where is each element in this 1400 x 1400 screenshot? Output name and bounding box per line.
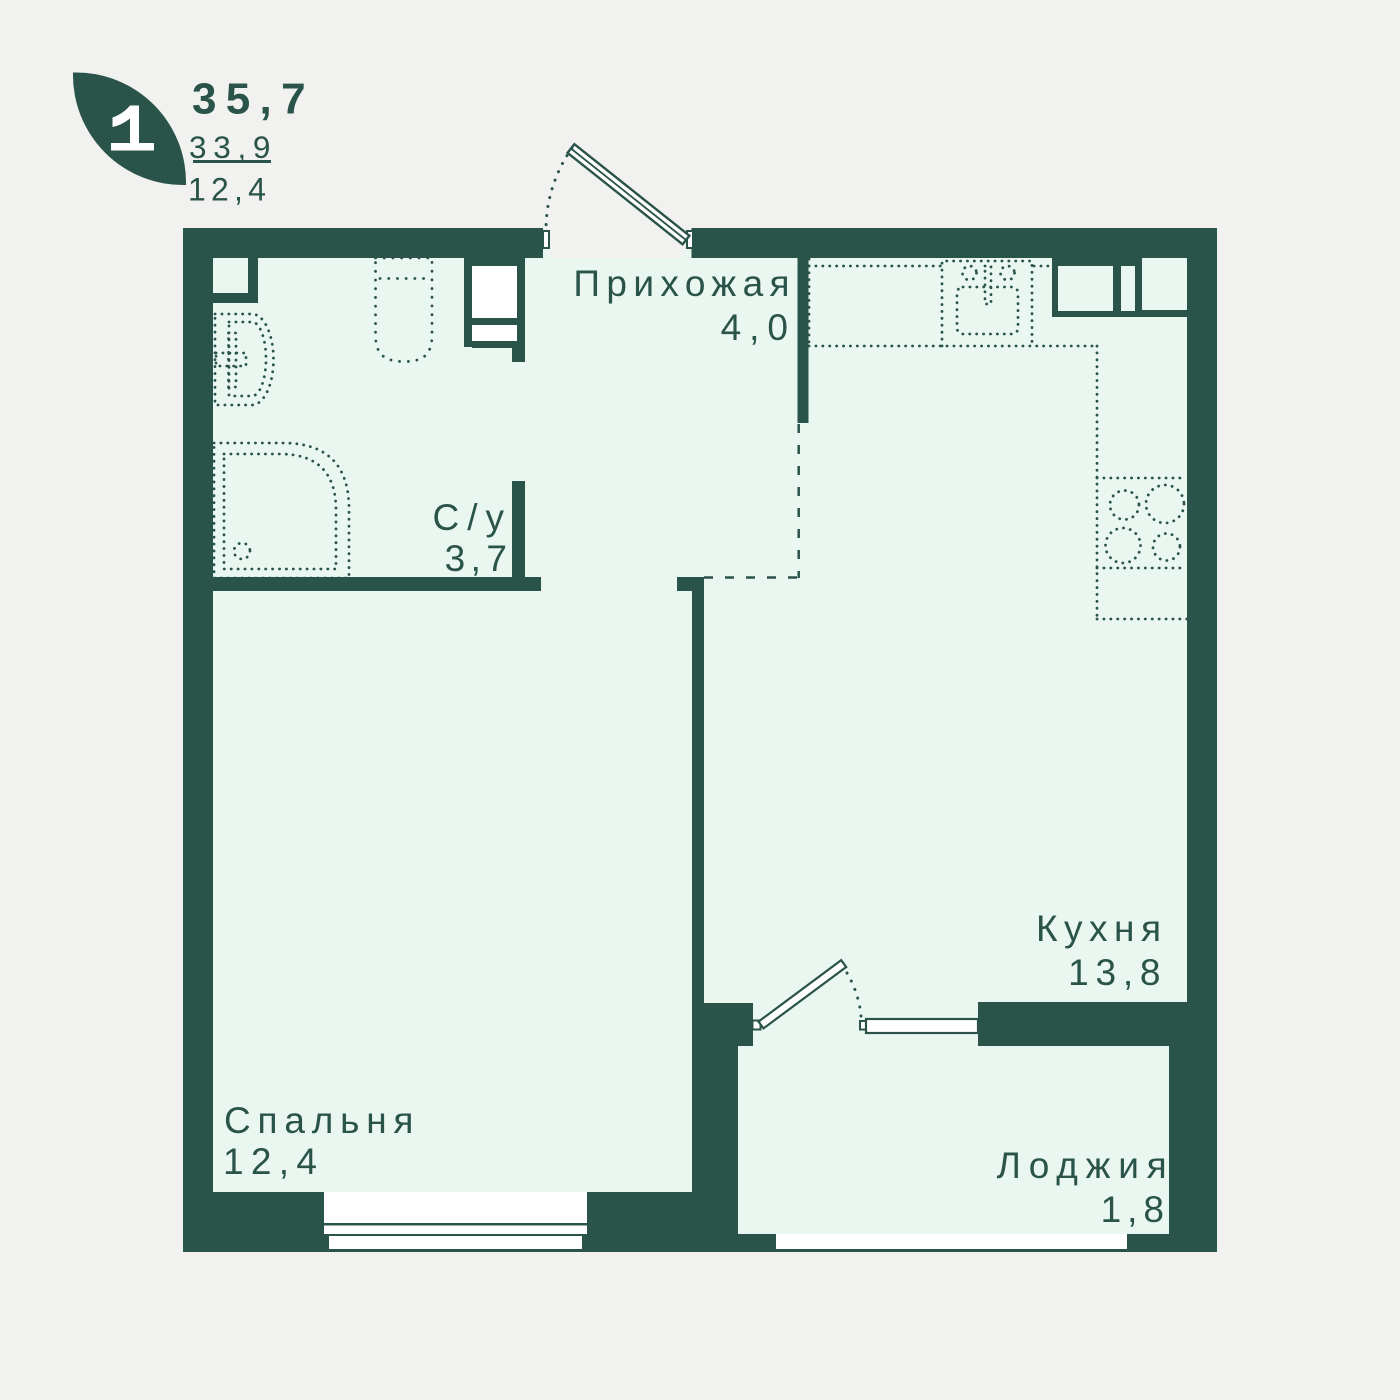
svg-text:1,8: 1,8 [1101, 1189, 1170, 1230]
svg-text:13,8: 13,8 [1068, 952, 1167, 993]
svg-text:12,4: 12,4 [188, 172, 271, 208]
svg-text:33,9: 33,9 [189, 129, 277, 165]
svg-text:35,7: 35,7 [192, 75, 315, 124]
svg-text:С/у: С/у [433, 497, 513, 538]
svg-text:Лоджия: Лоджия [997, 1145, 1175, 1186]
svg-text:12,4: 12,4 [223, 1141, 324, 1182]
svg-text:Спальня: Спальня [224, 1100, 420, 1141]
svg-text:4,0: 4,0 [721, 307, 796, 348]
svg-text:3,7: 3,7 [445, 538, 513, 579]
svg-text:Прихожая: Прихожая [573, 263, 796, 304]
svg-text:Кухня: Кухня [1036, 908, 1168, 949]
